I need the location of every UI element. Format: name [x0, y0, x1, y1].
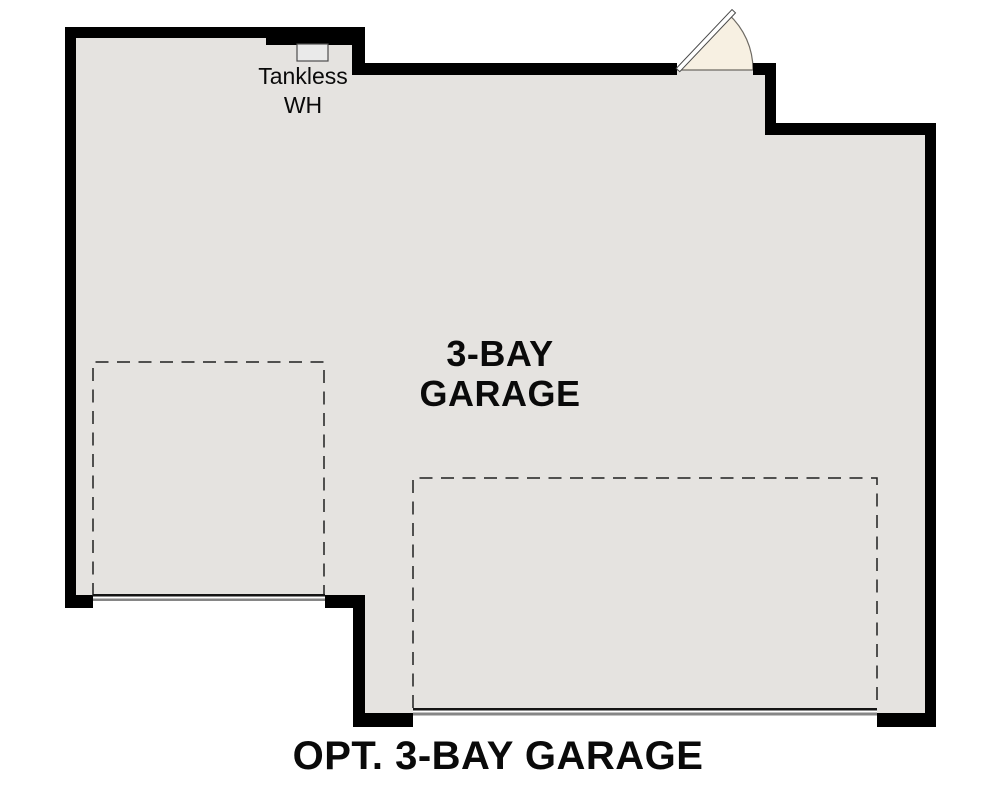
tankless-label-line1: Tankless [258, 63, 347, 89]
wall-left [65, 27, 76, 608]
wall-foot-leftbay-right [325, 595, 365, 608]
garage-door-main-shadow [413, 713, 877, 716]
wall-right [925, 123, 936, 727]
wall-top-right [363, 63, 677, 75]
floor-plan-page: Tankless WH 3-BAY GARAGE OPT. 3-BAY GARA… [0, 0, 1000, 800]
room-label-line2: GARAGE [419, 373, 580, 414]
wall-middle-vertical [353, 595, 365, 727]
wall-foot-leftbay-left [65, 595, 93, 608]
garage-door-main-line [413, 708, 877, 711]
tankless-label-line2: WH [284, 92, 322, 118]
garage-door-left-shadow [93, 599, 325, 602]
wall-tankless-nook [266, 27, 352, 45]
room-label-line1: 3-BAY [446, 333, 553, 374]
garage-door-left-line [93, 594, 325, 597]
floor-plan-svg: Tankless WH 3-BAY GARAGE OPT. 3-BAY GARA… [0, 0, 1000, 800]
plan-caption: OPT. 3-BAY GARAGE [293, 734, 704, 778]
tankless-water-heater-icon [297, 44, 328, 61]
wall-foot-bottom-right [877, 713, 936, 727]
wall-upper-right [765, 123, 936, 135]
